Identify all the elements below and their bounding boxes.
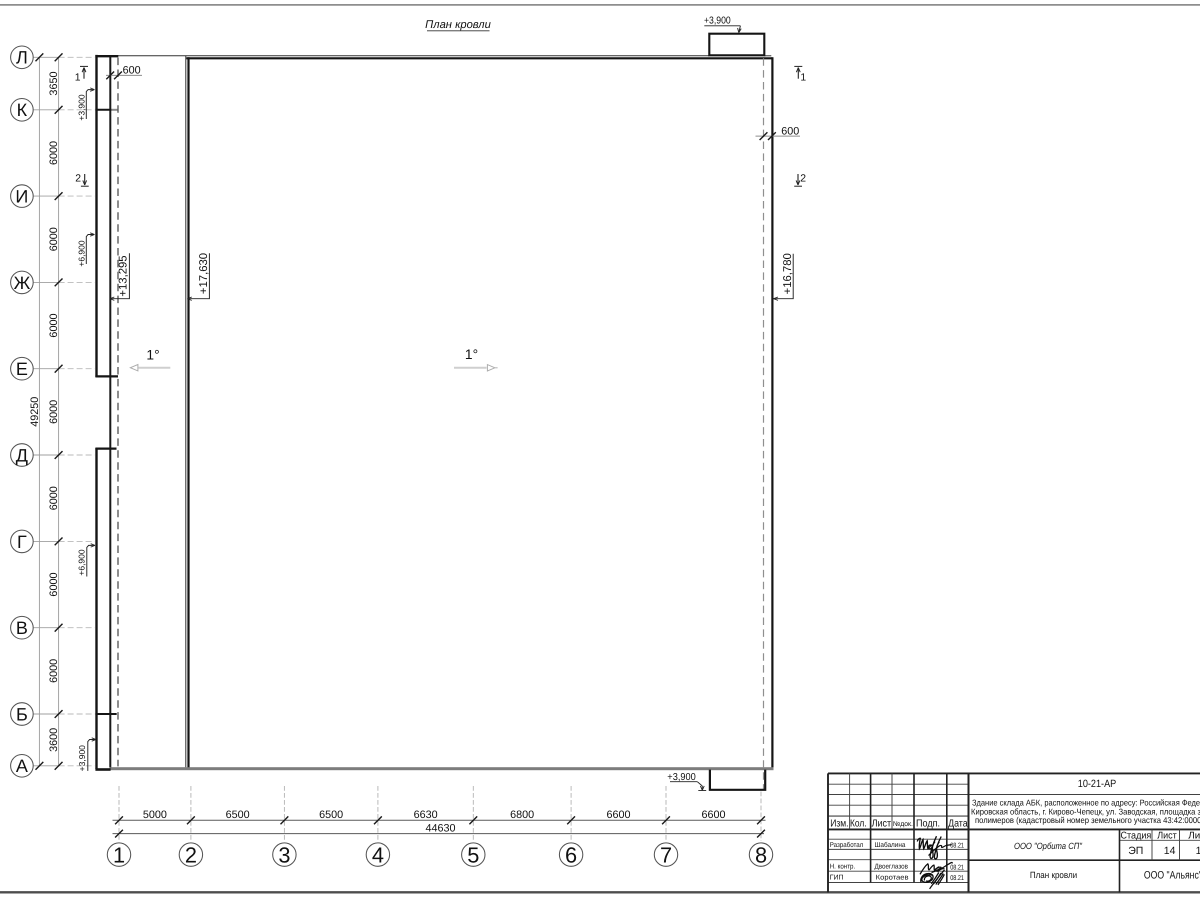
svg-text:8: 8	[755, 842, 767, 867]
svg-text:Н. контр.: Н. контр.	[830, 863, 856, 870]
svg-text:6: 6	[565, 842, 577, 867]
svg-text:+3,900: +3,900	[76, 94, 86, 121]
svg-text:Д: Д	[16, 445, 28, 465]
svg-text:1: 1	[800, 72, 806, 83]
svg-text:ООО "Орбита СП": ООО "Орбита СП"	[1014, 841, 1083, 851]
svg-text:2: 2	[800, 174, 806, 185]
svg-text:4: 4	[372, 842, 384, 867]
svg-text:2: 2	[75, 174, 81, 185]
svg-text:15: 15	[1196, 845, 1200, 857]
svg-text:А: А	[16, 756, 28, 776]
svg-text:6500: 6500	[226, 809, 250, 821]
svg-text:1°: 1°	[465, 347, 478, 362]
svg-text:ООО "Альянс": ООО "Альянс"	[1144, 870, 1200, 882]
svg-text:6800: 6800	[510, 809, 534, 821]
svg-text:Ж: Ж	[14, 273, 31, 293]
svg-text:К: К	[17, 100, 28, 120]
svg-text:7: 7	[660, 842, 672, 867]
svg-text:3650: 3650	[48, 72, 60, 96]
svg-text:Л: Л	[16, 48, 28, 68]
svg-text:+6,900: +6,900	[76, 240, 86, 267]
svg-text:6000: 6000	[48, 486, 60, 510]
svg-text:6000: 6000	[48, 659, 60, 683]
svg-text:Двоеглазов: Двоеглазов	[875, 863, 909, 870]
svg-text:+6,900: +6,900	[77, 549, 87, 576]
svg-text:6000: 6000	[48, 400, 60, 424]
svg-text:полимеров (кадастровый номер з: полимеров (кадастровый номер земельного …	[975, 815, 1200, 825]
svg-text:Б: Б	[16, 704, 28, 724]
svg-text:Разработал: Разработал	[830, 841, 864, 849]
svg-text:08.21: 08.21	[950, 875, 964, 882]
svg-text:+3,900: +3,900	[77, 745, 87, 772]
svg-text:ЭП: ЭП	[1128, 845, 1143, 857]
svg-text:08.21: 08.21	[950, 843, 964, 850]
svg-text:5000: 5000	[143, 809, 167, 821]
svg-text:3: 3	[278, 842, 290, 867]
svg-text:Изм.: Изм.	[830, 819, 848, 830]
svg-text:Лист: Лист	[1157, 831, 1177, 842]
svg-text:Коротаев: Коротаев	[876, 875, 909, 882]
svg-text:6600: 6600	[607, 809, 631, 821]
svg-text:+16,780: +16,780	[782, 253, 794, 294]
svg-text:2: 2	[185, 842, 197, 867]
svg-text:6000: 6000	[48, 573, 60, 597]
svg-text:6630: 6630	[414, 809, 438, 821]
svg-text:1: 1	[113, 842, 125, 867]
svg-text:Лист: Лист	[872, 819, 892, 830]
svg-text:1°: 1°	[146, 348, 159, 363]
svg-text:Подп.: Подп.	[916, 819, 940, 830]
svg-text:3600: 3600	[48, 728, 60, 752]
svg-text:49250: 49250	[29, 397, 41, 427]
svg-text:6600: 6600	[701, 809, 725, 821]
svg-text:600: 600	[781, 125, 799, 137]
svg-text:№док.: №док.	[893, 821, 913, 828]
svg-text:Г: Г	[17, 532, 27, 552]
svg-text:И: И	[15, 187, 28, 207]
svg-text:14: 14	[1164, 845, 1176, 857]
svg-text:ГИП: ГИП	[830, 875, 844, 882]
svg-text:+13,295: +13,295	[118, 255, 130, 296]
svg-text:Шабалина: Шабалина	[875, 841, 906, 849]
svg-text:44630: 44630	[425, 823, 455, 835]
svg-text:6000: 6000	[48, 314, 60, 338]
svg-text:Дата: Дата	[948, 819, 968, 830]
svg-text:Листов: Листов	[1188, 831, 1200, 842]
svg-text:6000: 6000	[48, 227, 60, 251]
svg-text:Кол.: Кол.	[850, 819, 867, 830]
svg-text:1: 1	[75, 72, 81, 83]
svg-text:План кровли: План кровли	[425, 19, 491, 31]
svg-text:Стадия: Стадия	[1121, 831, 1152, 842]
svg-text:600: 600	[123, 64, 141, 76]
svg-text:10-21-АР: 10-21-АР	[1078, 778, 1117, 790]
svg-text:В: В	[16, 618, 28, 638]
svg-text:План кровли: План кровли	[1030, 870, 1077, 880]
svg-text:6000: 6000	[48, 141, 60, 165]
svg-text:08.21: 08.21	[950, 864, 964, 871]
svg-text:+3,900: +3,900	[704, 16, 731, 27]
svg-text:5: 5	[467, 842, 479, 867]
svg-text:6500: 6500	[319, 809, 343, 821]
svg-text:+17,630: +17,630	[198, 253, 210, 294]
svg-text:Е: Е	[16, 359, 28, 379]
